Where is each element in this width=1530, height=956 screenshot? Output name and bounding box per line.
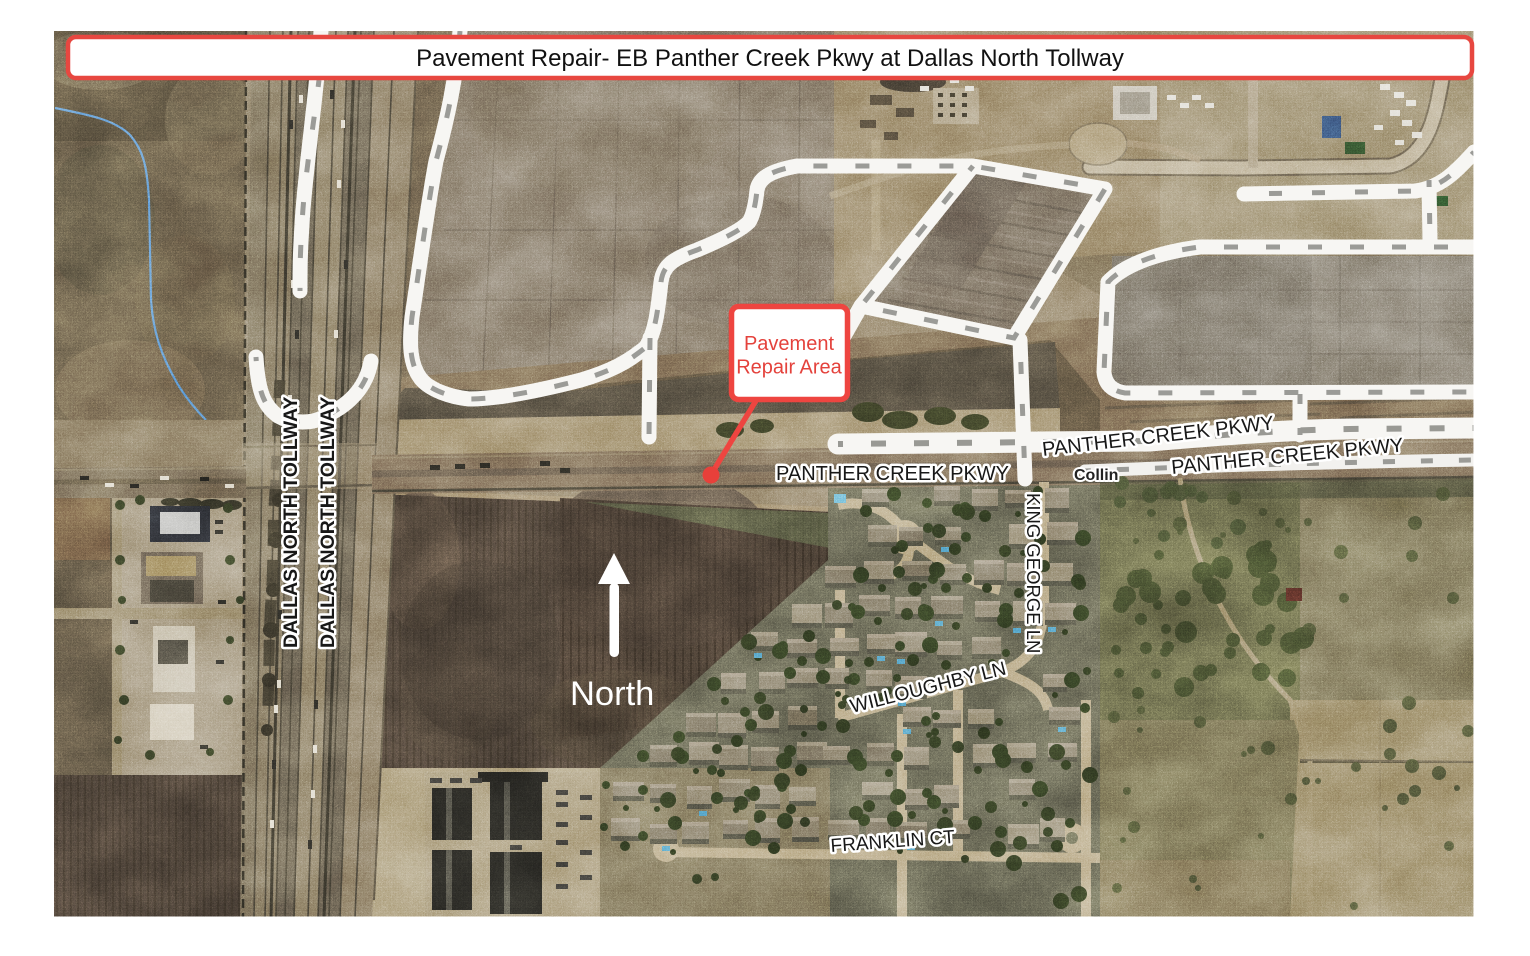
svg-text:Pavement Repair- EB Panther Cr: Pavement Repair- EB Panther Creek Pkwy a… [416, 45, 1124, 72]
svg-text:Repair Area: Repair Area [736, 357, 842, 379]
svg-text:PANTHER CREEK PKWY: PANTHER CREEK PKWY [776, 463, 1009, 485]
svg-text:KING GEORGE LN: KING GEORGE LN [1023, 493, 1044, 653]
svg-text:DALLAS NORTH TOLLWAY: DALLAS NORTH TOLLWAY [280, 397, 302, 648]
svg-text:North: North [570, 675, 654, 713]
svg-text:Collin: Collin [1074, 467, 1118, 484]
svg-text:Pavement: Pavement [744, 333, 834, 355]
svg-text:DALLAS NORTH TOLLWAY: DALLAS NORTH TOLLWAY [317, 397, 339, 648]
